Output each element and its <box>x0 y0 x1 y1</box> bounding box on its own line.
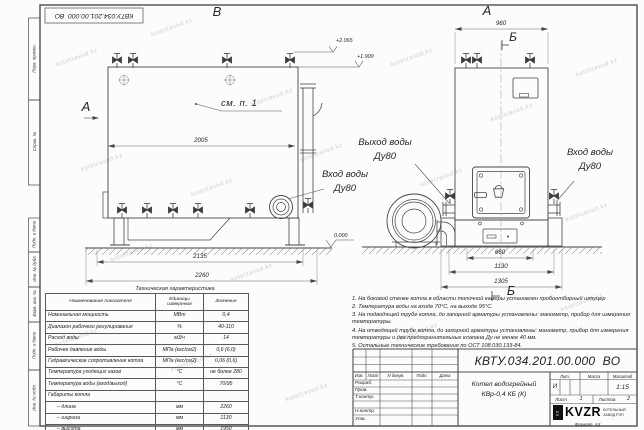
inlet-front-dn: Ду80 <box>556 162 624 173</box>
spec-unit: мм <box>156 402 204 413</box>
dim-1305: 1305 <box>461 279 541 286</box>
elevation-1900: +1.900 <box>357 54 374 60</box>
format-value: А3 <box>595 422 600 427</box>
tb-col-dokum: N докум. <box>380 373 412 378</box>
tb-col-izm: Изм. <box>353 373 367 378</box>
spec-name: Номинальная мощность <box>46 311 156 322</box>
table-row: Номинальная мощностьМВт0,4 <box>46 311 249 322</box>
spec-header-value: Значение <box>204 294 249 311</box>
spec-unit: м3/ч <box>156 333 204 344</box>
view-label-v: В <box>209 5 225 20</box>
spec-value: 70/95 <box>204 379 249 390</box>
margin-label-inv-podl: Инв. № подл. <box>32 370 37 426</box>
spec-unit <box>156 390 204 401</box>
spec-name: Габариты котла <box>46 390 156 401</box>
see-note-callout: см. п. 1 <box>221 99 257 110</box>
tb-row-razrab: Разраб. <box>355 381 372 386</box>
stamp-top-number: КВТУ.034.201.00.000 ВО <box>45 8 143 23</box>
kvzr-logo-text: KVZR <box>565 406 601 419</box>
spec-value: 40-110 <box>204 322 249 333</box>
spec-unit: мм <box>156 424 204 430</box>
note-2: 2. Температура воды на входе 70°С, на вы… <box>352 304 635 311</box>
section-label-b-top: Б <box>506 31 520 44</box>
spec-table: Наименование показателя Единицы измерени… <box>45 293 249 430</box>
table-row: – длинамм2260 <box>46 402 249 413</box>
table-row: Габариты котла <box>46 390 249 401</box>
margin-label-podp-data-2: Подп. и дата <box>32 322 37 370</box>
format-label: Формат А3 <box>575 422 600 427</box>
tb-row-prov: Пров. <box>355 388 368 393</box>
spec-value: 0,4 <box>204 311 249 322</box>
note-3: 3. На подводящей трубе котла, до запорно… <box>352 312 635 326</box>
note-4: 4. На отводящей трубе котла, до запорной… <box>352 328 635 342</box>
dim-2135: 2135 <box>160 254 240 261</box>
tb-row-nkontr: Н.контр. <box>355 409 375 414</box>
spec-unit: мм <box>156 413 204 424</box>
spec-name: – ширина <box>46 413 156 424</box>
table-row: Температура уходящих газов°Сне более 280 <box>46 367 249 378</box>
tb-col-list: Лист <box>366 373 380 378</box>
margin-label-inv-dubl: Инв. № дубл. <box>32 251 37 286</box>
spec-name: Расход воды <box>46 333 156 344</box>
tb-row-tkontr: Т.контр. <box>355 395 374 400</box>
product-name-line1: Котел водогрейный <box>459 381 549 388</box>
table-row: – высотамм1950 <box>46 424 249 430</box>
margin-label-podp-data-1: Подп. и дата <box>32 218 37 252</box>
kvzr-logo-sub2: ЗАВОД РЭП <box>603 413 626 417</box>
spec-unit: °С <box>156 379 204 390</box>
tb-lit-value: И <box>550 384 560 390</box>
view-label-a-top: А <box>478 4 496 19</box>
side-view-linework <box>85 67 332 255</box>
spec-name: – высота <box>46 424 156 430</box>
inlet-side-label: Вход воды <box>314 170 376 181</box>
doc-number: КВТУ.034.201.00.000 ВО <box>459 351 636 372</box>
table-row: Расход водым3/ч14 <box>46 333 249 344</box>
spec-name: Диапазон рабочего регулирования <box>46 322 156 333</box>
tb-sheet-value: 1 <box>573 396 589 402</box>
spec-table-title: Техническая характеристика <box>95 286 255 292</box>
dim-2260: 2260 <box>162 273 242 280</box>
view-label-a-side: А <box>77 100 95 115</box>
outlet-front-dn: Ду80 <box>349 152 421 163</box>
spec-value: 0,06 (0,6) <box>204 356 249 367</box>
table-row: – ширинамм1130 <box>46 413 249 424</box>
product-name-line2: КВр-0,4 КБ (К) <box>459 391 549 398</box>
spec-header-row: Наименование показателя Единицы измерени… <box>46 294 249 311</box>
spec-unit: % <box>156 322 204 333</box>
spec-unit: МВт <box>156 311 204 322</box>
spec-header-unit: Единицы измерения <box>156 294 204 311</box>
spec-value: 2260 <box>204 402 249 413</box>
kvzr-logo: КЗ KVZR КОТЕЛЬНЫЙ ЗАВОД РЭП <box>553 405 626 420</box>
note-1: 1. На боковой стенке котла в области топ… <box>352 296 635 303</box>
tb-sheets-label: Листов <box>594 397 620 402</box>
dim-960: 960 <box>461 21 541 28</box>
spec-name: Рабочее давление воды <box>46 345 156 356</box>
kvzr-logo-subtitle: КОТЕЛЬНЫЙ ЗАВОД РЭП <box>603 408 626 417</box>
spec-value: не более 280 <box>204 367 249 378</box>
inlet-side-dn: Ду80 <box>314 184 376 195</box>
tb-scale-label: Масштаб <box>608 374 637 379</box>
margin-label-vzam-inv: Взам. инв. № <box>32 286 37 321</box>
spec-name: Температура воды (вход/выход) <box>46 379 156 390</box>
spec-unit: МПа (кгс/см2) <box>156 345 204 356</box>
tb-row-utv: Утв. <box>355 417 366 422</box>
spec-value: 14 <box>204 333 249 344</box>
table-row: Гидравлическое сопротивление котлаМПа (к… <box>46 356 249 367</box>
elevation-0000: 0.000 <box>334 233 348 239</box>
table-row: Температура воды (вход/выход)°С70/95 <box>46 379 249 390</box>
spec-name: Температура уходящих газов <box>46 367 156 378</box>
tb-lit-label: Лит. <box>550 374 580 379</box>
tb-sheets-value: 2 <box>622 396 635 402</box>
margin-label-sprav-no: Справ. № <box>32 99 37 184</box>
drawing-sheet: kotelzavod.kz kotelzavod.kz kotelzavod.k… <box>0 0 644 430</box>
table-row: Рабочее давление водыМПа (кгс/см2)0,6 (6… <box>46 345 249 356</box>
spec-unit: °С <box>156 367 204 378</box>
dim-1130: 1130 <box>461 264 541 271</box>
spec-header-name: Наименование показателя <box>46 294 156 311</box>
dim-660: 660 <box>460 250 540 257</box>
spec-name: – длина <box>46 402 156 413</box>
tb-col-podp: Подп. <box>412 373 432 378</box>
dim-2005: 2005 <box>161 138 241 145</box>
spec-value: 1130 <box>204 413 249 424</box>
tb-sheet-label: Лист <box>551 397 571 402</box>
tb-scale-value: 1:15 <box>608 384 637 391</box>
tb-col-data: Дата <box>432 373 458 378</box>
spec-value: 1950 <box>204 424 249 430</box>
spec-value <box>204 390 249 401</box>
spec-value: 0,6 (6,0) <box>204 345 249 356</box>
technical-notes: 1. На боковой стенке котла в области топ… <box>352 296 635 351</box>
inlet-front-label: Вход воды <box>556 148 624 159</box>
table-row: Диапазон рабочего регулирования%40-110 <box>46 322 249 333</box>
kvzr-logo-mark-icon: КЗ <box>553 405 563 420</box>
elevation-2065: +2.065 <box>336 38 353 44</box>
spec-unit: МПа (кгс/см2) <box>156 356 204 367</box>
kvzr-logo-sub1: КОТЕЛЬНЫЙ <box>603 408 626 412</box>
note-5: 5. Остальные технические требования по О… <box>352 343 635 350</box>
spec-name: Гидравлическое сопротивление котла <box>46 356 156 367</box>
outlet-front-label: Выход воды <box>349 138 421 149</box>
margin-label-perv-primen: Перв. примен. <box>32 18 37 100</box>
tb-mass-label: Масса <box>580 374 608 379</box>
format-word: Формат <box>575 422 592 427</box>
